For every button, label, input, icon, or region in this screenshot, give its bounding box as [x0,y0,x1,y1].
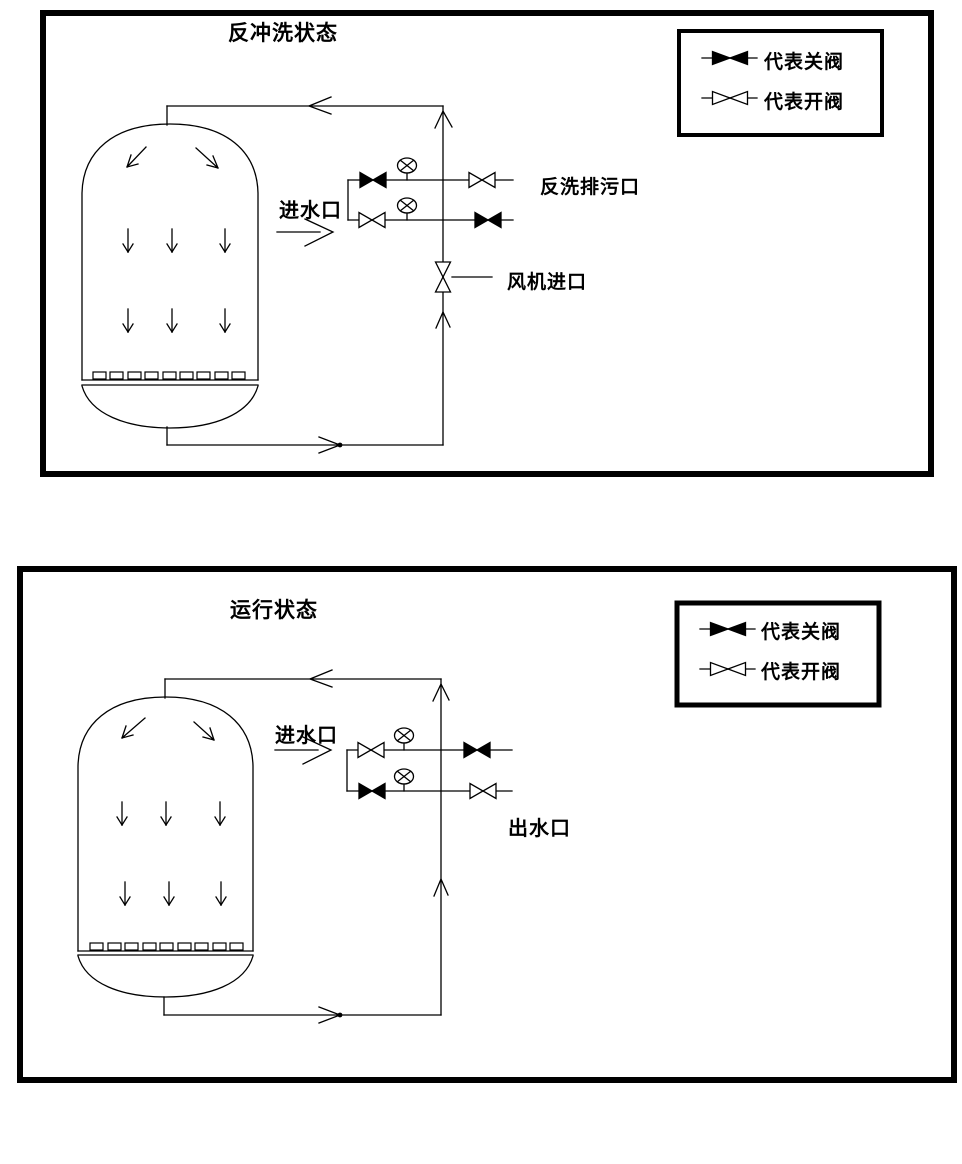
backwash-drain-label: 反洗排污口 [540,172,640,199]
panel-border [43,13,931,474]
pressure-gauge-icon [395,728,414,750]
diagram-canvas [0,0,962,1164]
panel-border [20,569,954,1080]
strainer-nozzles [93,372,245,379]
inlet-label: 进水口 [279,194,342,223]
tank-shell [82,124,258,380]
legend-open-valve-icon [702,92,757,105]
closed-valve-icon [360,173,386,188]
inlet-flow-arrow [277,219,333,246]
strainer-nozzles [90,943,243,950]
blower-valve-icon [436,262,451,292]
legend-open-label: 代表开阀 [764,87,844,114]
panel-title: 反冲洗状态 [228,17,338,47]
open-valve-icon [469,173,495,188]
pressure-gauge-icon [395,769,414,791]
closed-valve-icon [475,213,501,228]
flow-arrows-in-tank [117,718,226,905]
closed-valve-icon [359,784,385,799]
piping [167,97,513,453]
legend-closed-label: 代表关阀 [764,47,844,74]
legend-open-valve-icon [700,663,755,676]
piping [164,670,512,1023]
open-valve-icon [358,743,384,758]
inlet-label: 进水口 [275,719,338,748]
pressure-gauge-icon [398,198,417,220]
legend-open-label: 代表开阀 [761,657,841,684]
open-valve-icon [359,213,385,228]
running-panel [20,569,954,1080]
closed-valve-icon [464,743,490,758]
diagram-page: 反冲洗状态 代表关阀 代表开阀 进水口 反洗排污口 风机进口 运行状态 代表关阀… [0,0,962,1164]
legend-closed-label: 代表关阀 [761,617,841,644]
tank-bottom-dish [82,386,258,428]
backwash-panel [43,13,931,474]
filter-tank [82,124,258,428]
filter-tank [78,697,253,997]
legend-closed-valve-icon [702,52,757,65]
panel-title: 运行状态 [230,594,318,624]
flow-arrows-in-tank [123,147,230,332]
outlet-label: 出水口 [508,812,571,841]
tank-bottom-dish [78,956,253,997]
open-valve-icon [470,784,496,799]
pressure-gauge-icon [398,158,417,180]
blower-inlet-label: 风机进口 [507,267,587,294]
legend-closed-valve-icon [700,623,755,636]
